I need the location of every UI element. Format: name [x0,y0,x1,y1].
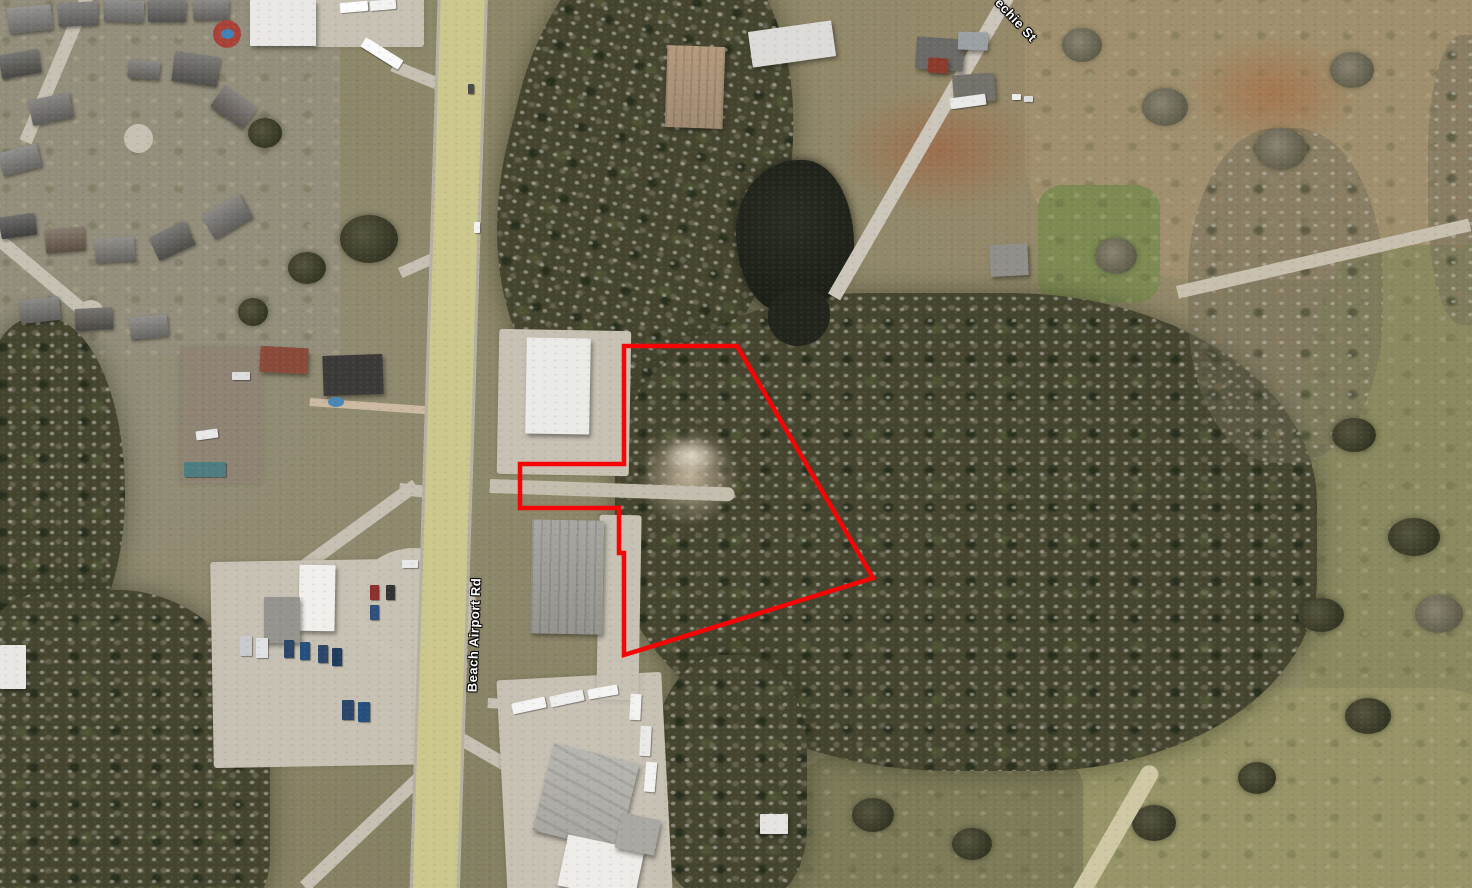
parcel-overlay [0,0,1472,888]
parcel-boundary [520,346,873,655]
satellite-map[interactable]: Beach Airport Rd echie St [0,0,1472,888]
